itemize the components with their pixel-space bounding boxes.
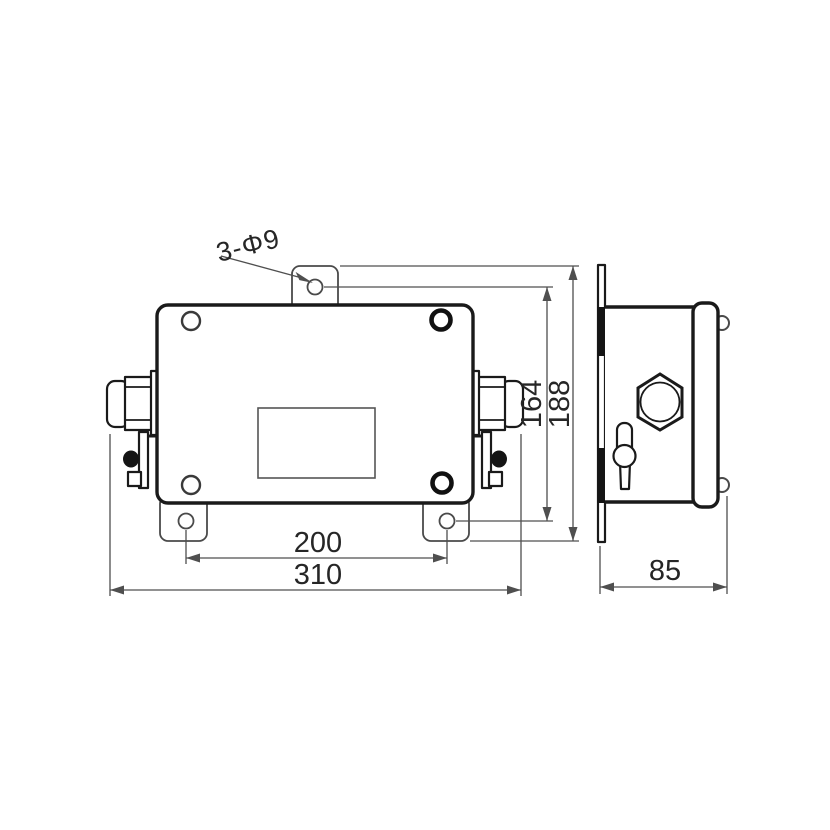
dim-depth: 85 (600, 555, 727, 592)
earth-pin-ball (614, 445, 636, 467)
dim-200-label: 200 (294, 527, 342, 559)
dim-overall-width: 310 (110, 559, 521, 595)
nameplate (258, 408, 375, 478)
arrowhead (713, 583, 727, 592)
cover-screw-bottom-right (433, 474, 452, 493)
cover-screw-top-left (182, 312, 200, 330)
arrowhead (569, 527, 578, 541)
hole-callout-label: 3-Φ9 (213, 223, 283, 268)
earth-terminal-lug (128, 472, 141, 486)
cover-screw-top-right (432, 311, 451, 330)
arrowhead (543, 507, 552, 521)
dim-310-label: 310 (294, 559, 342, 591)
arrowhead (507, 586, 521, 595)
arrowhead (543, 287, 552, 301)
dim-overall-height: 188 (544, 266, 578, 541)
cover-screw-bottom-left (182, 476, 200, 494)
hole-callout: 3-Φ9 (213, 223, 313, 283)
bottom-right-tab-hole (440, 514, 455, 529)
earth-terminal-lug (489, 472, 502, 486)
earth-terminal-screw (491, 451, 507, 468)
drawing-canvas: 200 310 164 188 85 (0, 0, 830, 830)
dim-85-label: 85 (649, 555, 681, 587)
dim-188-label: 188 (544, 380, 576, 428)
arrowhead (569, 266, 578, 280)
side-cover (693, 303, 718, 507)
left-cable-gland (107, 371, 160, 488)
front-view (107, 266, 523, 541)
mounting-plate-section-bottom (598, 448, 606, 503)
gland-hex-body (125, 377, 152, 430)
arrowhead (186, 554, 200, 563)
gland-hex-body (478, 377, 505, 430)
mounting-plate-section-top (598, 307, 606, 356)
arrowhead (110, 586, 124, 595)
side-view (598, 265, 730, 542)
dim-mount-spacing-horizontal: 200 (186, 527, 447, 563)
bottom-left-tab-hole (179, 514, 194, 529)
drawing-page: 200 310 164 188 85 (0, 0, 830, 830)
earth-terminal-screw (123, 451, 139, 468)
arrowhead (433, 554, 447, 563)
arrowhead (600, 583, 614, 592)
